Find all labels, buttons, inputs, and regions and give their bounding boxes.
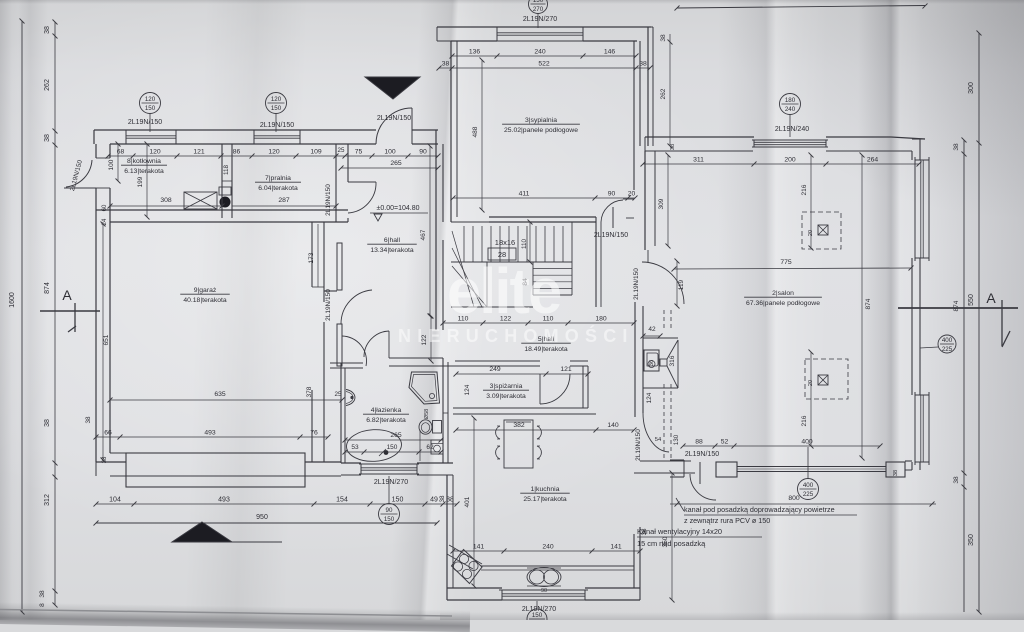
svg-text:2L19N/150: 2L19N/150 — [325, 289, 332, 321]
svg-text:2L19N/270: 2L19N/270 — [523, 16, 557, 23]
svg-text:950: 950 — [256, 514, 268, 521]
svg-text:150: 150 — [532, 612, 543, 619]
svg-text:308: 308 — [160, 197, 172, 204]
svg-text:60: 60 — [102, 204, 108, 211]
svg-text:488: 488 — [472, 126, 479, 137]
svg-text:265: 265 — [390, 432, 402, 439]
svg-text:kanał pod posadzką doprowad: kanał pod posadzką doprowadzający powiet… — [684, 505, 835, 514]
svg-text:140: 140 — [607, 422, 619, 429]
svg-text:38: 38 — [953, 143, 960, 151]
svg-text:180: 180 — [785, 97, 796, 104]
svg-text:1|kuchnia: 1|kuchnia — [531, 486, 560, 493]
svg-text:240: 240 — [785, 106, 796, 113]
svg-text:130: 130 — [673, 434, 680, 445]
svg-text:150: 150 — [392, 497, 404, 504]
svg-text:20: 20 — [808, 230, 814, 236]
svg-text:13.34|terakota: 13.34|terakota — [370, 247, 414, 254]
svg-text:411: 411 — [519, 191, 530, 198]
svg-text:350: 350 — [662, 536, 669, 547]
svg-text:2L19N/150: 2L19N/150 — [69, 159, 84, 192]
svg-text:25: 25 — [338, 147, 345, 154]
svg-text:25.17|terakota: 25.17|terakota — [523, 496, 567, 503]
svg-text:38: 38 — [442, 61, 450, 68]
svg-text:36: 36 — [649, 360, 655, 366]
svg-text:53: 53 — [351, 444, 359, 451]
svg-text:38: 38 — [85, 416, 92, 424]
svg-text:493: 493 — [218, 497, 230, 504]
svg-text:800: 800 — [788, 495, 800, 502]
svg-text:874: 874 — [953, 300, 960, 311]
svg-text:A: A — [62, 287, 72, 303]
svg-text:2L19N/150: 2L19N/150 — [633, 268, 640, 300]
svg-text:350: 350 — [968, 534, 975, 546]
svg-text:3|spiżarnia: 3|spiżarnia — [490, 383, 523, 390]
svg-text:150: 150 — [271, 105, 282, 112]
svg-text:401: 401 — [464, 496, 471, 507]
svg-text:2L19N/150: 2L19N/150 — [635, 429, 642, 461]
svg-text:15 cm nad posadzką: 15 cm nad posadzką — [637, 539, 706, 548]
svg-text:550: 550 — [968, 294, 975, 306]
svg-text:38: 38 — [893, 470, 899, 476]
svg-text:±0.00=104.80: ±0.00=104.80 — [377, 205, 420, 212]
svg-text:225: 225 — [942, 346, 953, 353]
svg-text:104: 104 — [109, 497, 121, 504]
svg-text:110: 110 — [521, 238, 528, 249]
svg-text:3.09|terakota: 3.09|terakota — [486, 393, 526, 400]
svg-text:216: 216 — [801, 184, 808, 195]
svg-text:400: 400 — [942, 337, 953, 344]
svg-text:141: 141 — [610, 544, 622, 551]
svg-text:124: 124 — [464, 384, 471, 395]
svg-text:382: 382 — [513, 422, 525, 429]
svg-text:150: 150 — [145, 105, 156, 112]
svg-text:300: 300 — [968, 82, 975, 94]
svg-text:66: 66 — [104, 430, 112, 437]
svg-text:240: 240 — [534, 49, 546, 56]
svg-text:120: 120 — [271, 96, 282, 103]
svg-text:6|hall: 6|hall — [384, 237, 401, 244]
svg-text:3|sypialnia: 3|sypialnia — [525, 117, 557, 124]
svg-text:216: 216 — [801, 415, 808, 426]
svg-text:264: 264 — [867, 157, 879, 164]
svg-text:121: 121 — [193, 149, 205, 156]
svg-text:38: 38 — [439, 495, 446, 503]
svg-text:38: 38 — [670, 144, 676, 150]
svg-text:467: 467 — [420, 229, 427, 240]
svg-text:54: 54 — [655, 437, 662, 443]
svg-text:378: 378 — [306, 386, 313, 397]
svg-text:2L19N/150: 2L19N/150 — [260, 122, 294, 129]
svg-text:6.13|terakota: 6.13|terakota — [124, 168, 164, 175]
svg-text:49: 49 — [430, 497, 438, 504]
svg-text:100: 100 — [108, 159, 115, 170]
svg-text:90: 90 — [608, 191, 616, 198]
svg-text:136: 136 — [469, 49, 481, 56]
svg-text:651: 651 — [103, 334, 110, 345]
svg-text:38: 38 — [39, 590, 46, 598]
svg-text:18.49|terakota: 18.49|terakota — [524, 346, 568, 353]
svg-text:312: 312 — [44, 494, 51, 506]
svg-text:38: 38 — [953, 476, 960, 484]
svg-text:400: 400 — [803, 482, 814, 489]
svg-text:119: 119 — [678, 279, 685, 290]
svg-text:75: 75 — [355, 149, 363, 156]
svg-text:240: 240 — [542, 544, 554, 551]
svg-text:90: 90 — [541, 588, 547, 594]
svg-text:67.36|panele podłogowe: 67.36|panele podłogowe — [746, 300, 820, 307]
svg-text:7|pralnia: 7|pralnia — [265, 175, 291, 182]
svg-text:249: 249 — [489, 366, 501, 373]
svg-text:6.04|terakota: 6.04|terakota — [258, 185, 298, 192]
svg-text:20: 20 — [628, 191, 636, 198]
svg-text:120: 120 — [149, 149, 161, 156]
svg-text:262: 262 — [44, 79, 51, 91]
svg-text:62: 62 — [426, 444, 434, 451]
svg-text:4|łazienka: 4|łazienka — [371, 407, 402, 414]
svg-text:109: 109 — [310, 149, 322, 156]
svg-text:150: 150 — [533, 0, 544, 4]
svg-text:120: 120 — [145, 96, 156, 103]
svg-text:121: 121 — [560, 366, 572, 373]
svg-text:225: 225 — [803, 491, 814, 498]
svg-text:270: 270 — [533, 6, 544, 13]
svg-text:2L19N/150: 2L19N/150 — [128, 119, 162, 126]
svg-text:6.82|terakota: 6.82|terakota — [366, 417, 406, 424]
svg-text:88: 88 — [695, 439, 703, 446]
svg-text:154: 154 — [336, 497, 348, 504]
svg-text:173: 173 — [308, 252, 315, 263]
svg-text:150: 150 — [384, 516, 395, 523]
svg-text:2|salon: 2|salon — [772, 290, 794, 297]
svg-text:Ø58: Ø58 — [424, 409, 430, 419]
svg-text:124: 124 — [646, 392, 653, 403]
svg-text:118: 118 — [223, 164, 230, 175]
svg-text:150: 150 — [387, 444, 398, 451]
svg-text:76: 76 — [310, 430, 318, 437]
svg-text:40.18|terakota: 40.18|terakota — [183, 297, 227, 304]
svg-text:2L19N/150: 2L19N/150 — [325, 184, 332, 216]
svg-text:90: 90 — [419, 149, 427, 156]
svg-text:874: 874 — [44, 282, 51, 294]
svg-text:265: 265 — [390, 160, 402, 167]
svg-text:400: 400 — [801, 439, 813, 446]
svg-text:287: 287 — [278, 197, 290, 204]
svg-text:146: 146 — [604, 49, 616, 56]
svg-text:1600: 1600 — [9, 292, 16, 308]
svg-text:2L19N/240: 2L19N/240 — [775, 126, 809, 133]
svg-text:262: 262 — [660, 88, 667, 99]
svg-text:2L19N/150: 2L19N/150 — [594, 232, 628, 239]
svg-text:90: 90 — [386, 507, 393, 514]
svg-text:874: 874 — [865, 298, 872, 309]
svg-text:25.02|panele podłogowe: 25.02|panele podłogowe — [504, 127, 578, 134]
svg-text:522: 522 — [538, 61, 550, 68]
svg-text:2L19N/150: 2L19N/150 — [685, 451, 719, 458]
svg-text:Kanał wentylacyjny 14x20: Kanał wentylacyjny 14x20 — [637, 527, 722, 536]
svg-text:52: 52 — [721, 439, 729, 446]
svg-text:493: 493 — [204, 430, 216, 437]
svg-text:9|garaż: 9|garaż — [194, 287, 217, 294]
svg-text:42: 42 — [648, 326, 656, 333]
svg-text:38: 38 — [44, 134, 51, 142]
svg-text:100: 100 — [384, 149, 396, 156]
svg-text:309: 309 — [658, 198, 665, 209]
svg-text:8|kotłownia: 8|kotłownia — [127, 158, 161, 165]
svg-text:199: 199 — [137, 176, 144, 187]
svg-text:775: 775 — [780, 259, 792, 266]
svg-text:311: 311 — [693, 157, 704, 164]
svg-text:120: 120 — [268, 149, 280, 156]
svg-text:86: 86 — [233, 149, 241, 156]
svg-text:38: 38 — [44, 26, 51, 34]
svg-text:200: 200 — [784, 157, 796, 164]
svg-text:38: 38 — [641, 528, 648, 536]
svg-text:38: 38 — [44, 419, 51, 427]
svg-text:2L19N/270: 2L19N/270 — [374, 479, 408, 486]
svg-text:141: 141 — [473, 544, 485, 551]
svg-text:635: 635 — [214, 391, 226, 398]
svg-text:A: A — [986, 290, 996, 306]
svg-text:z zewnątrz rura PCV ø 150: z zewnątrz rura PCV ø 150 — [684, 516, 770, 525]
svg-text:18x16: 18x16 — [495, 238, 515, 247]
svg-text:316: 316 — [669, 355, 676, 366]
svg-text:2L19N/150: 2L19N/150 — [377, 115, 411, 122]
svg-text:38: 38 — [660, 34, 667, 42]
svg-text:8: 8 — [39, 603, 46, 607]
